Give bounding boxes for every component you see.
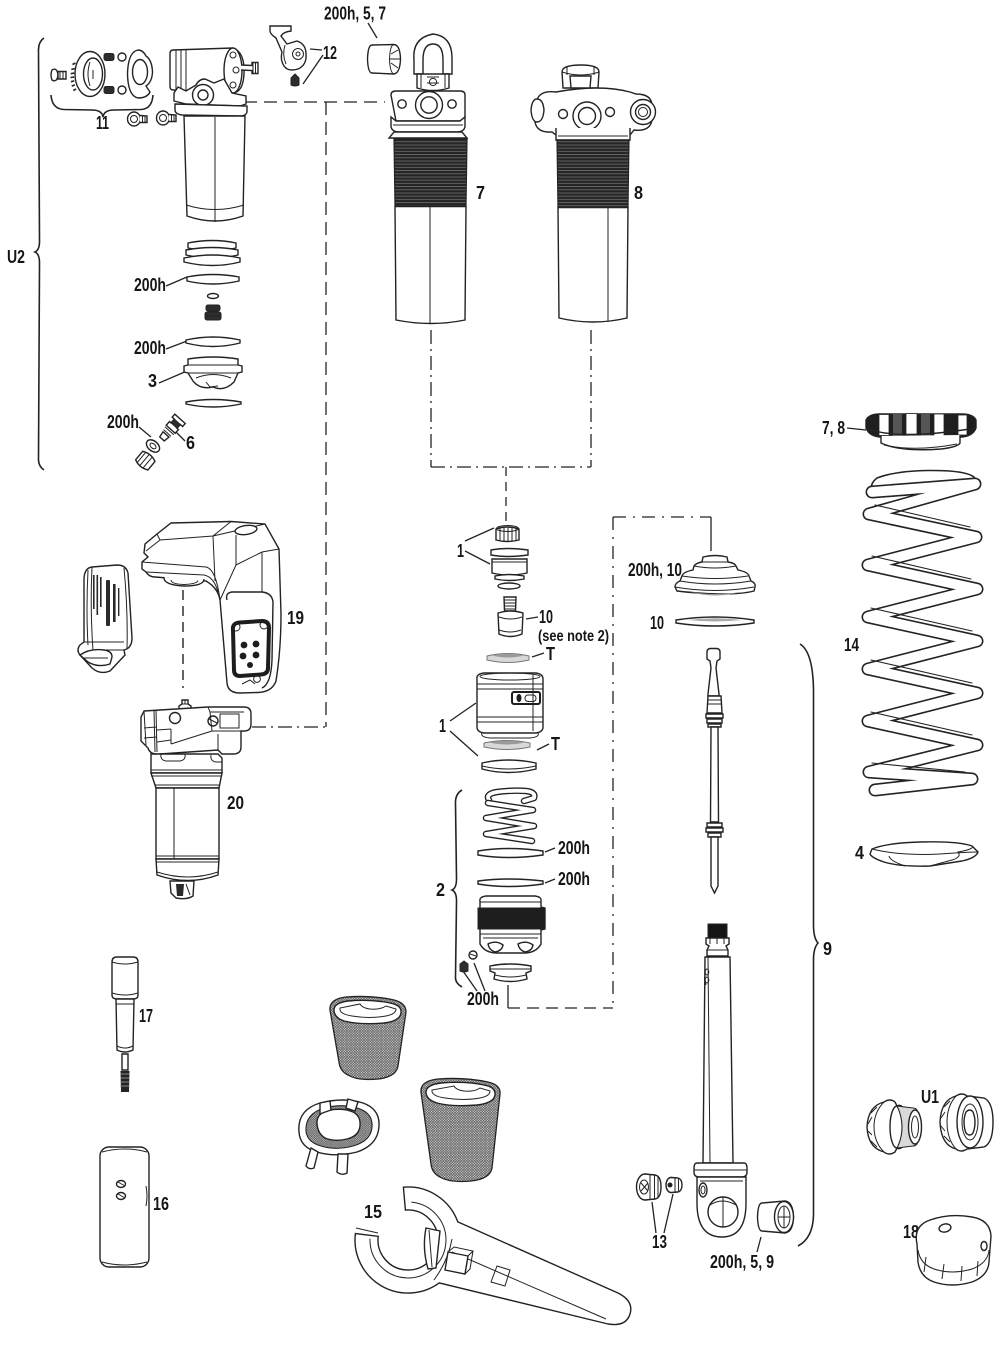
svg-text:19: 19 bbox=[287, 608, 304, 628]
svg-text:17: 17 bbox=[139, 1006, 153, 1026]
svg-text:6: 6 bbox=[186, 433, 195, 453]
svg-text:15: 15 bbox=[364, 1202, 382, 1222]
svg-text:10: 10 bbox=[650, 613, 664, 633]
svg-text:200h, 5, 7: 200h, 5, 7 bbox=[324, 4, 386, 24]
svg-text:1: 1 bbox=[439, 716, 446, 736]
svg-text:13: 13 bbox=[652, 1232, 667, 1252]
svg-text:3: 3 bbox=[148, 371, 157, 391]
svg-text:(see note 2): (see note 2) bbox=[538, 628, 609, 645]
svg-text:U1: U1 bbox=[921, 1087, 939, 1107]
svg-text:200h: 200h bbox=[107, 412, 139, 432]
svg-text:U2: U2 bbox=[7, 247, 25, 267]
svg-text:200h: 200h bbox=[467, 989, 499, 1009]
svg-text:7: 7 bbox=[476, 183, 485, 203]
svg-text:200h: 200h bbox=[134, 275, 166, 295]
svg-text:16: 16 bbox=[153, 1194, 169, 1214]
svg-text:4: 4 bbox=[855, 843, 864, 863]
svg-text:200h: 200h bbox=[558, 869, 590, 889]
svg-text:1: 1 bbox=[457, 541, 464, 561]
svg-text:T: T bbox=[546, 644, 555, 664]
svg-text:200h: 200h bbox=[134, 338, 166, 358]
svg-text:200h, 10: 200h, 10 bbox=[628, 560, 682, 580]
svg-text:14: 14 bbox=[844, 635, 859, 655]
svg-text:7, 8: 7, 8 bbox=[822, 418, 845, 438]
svg-text:2: 2 bbox=[436, 880, 445, 900]
svg-text:9: 9 bbox=[823, 939, 832, 959]
svg-text:12: 12 bbox=[323, 43, 337, 63]
svg-text:10: 10 bbox=[539, 607, 553, 627]
svg-text:200h: 200h bbox=[558, 838, 590, 858]
svg-text:20: 20 bbox=[227, 793, 244, 813]
svg-text:8: 8 bbox=[634, 183, 643, 203]
svg-text:T: T bbox=[551, 734, 560, 754]
svg-text:200h, 5, 9: 200h, 5, 9 bbox=[710, 1252, 774, 1272]
